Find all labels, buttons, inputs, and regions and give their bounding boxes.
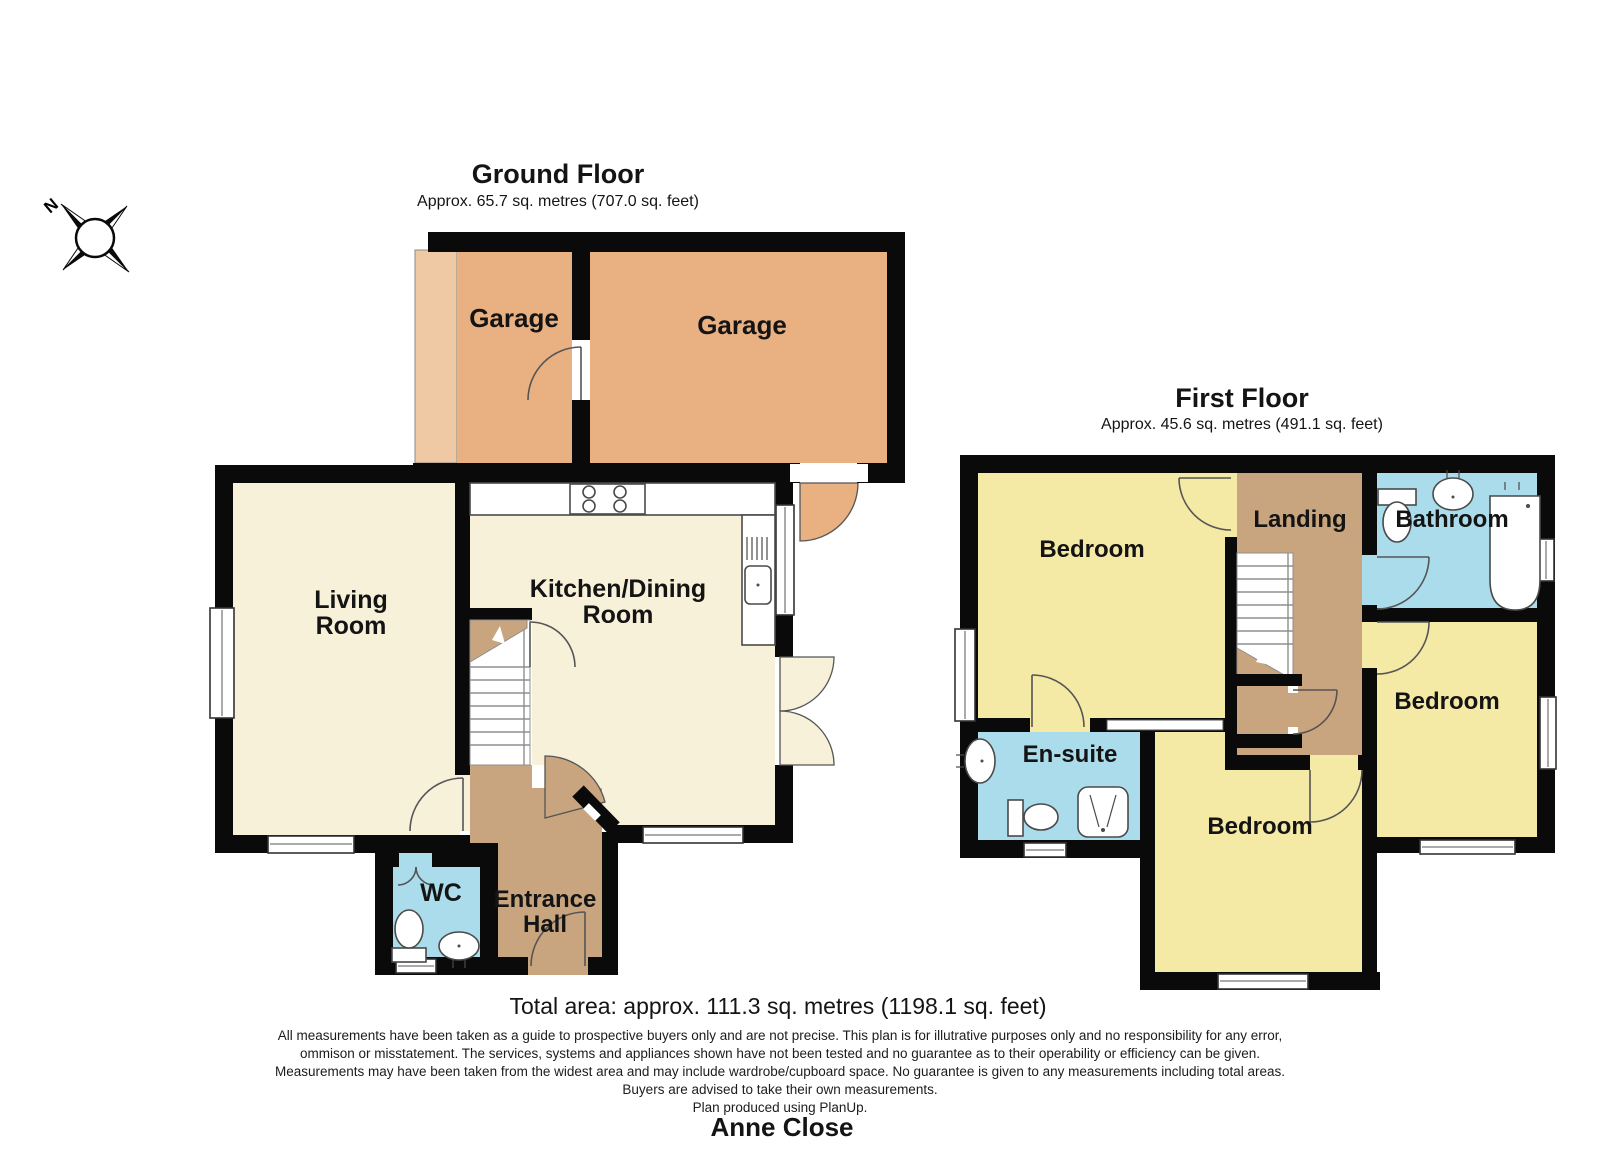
first-floor-plan: Bedroom Landing Bathroom En-suite Bedroo… — [955, 455, 1556, 990]
bedroom-top-left-floor — [978, 473, 1225, 718]
hall-floor — [470, 765, 532, 843]
toilet-icon — [392, 910, 426, 962]
french-door-leaf — [780, 711, 834, 765]
bathroom-label: Bathroom — [1395, 506, 1508, 533]
floorplan-canvas: N — [0, 0, 1600, 1163]
shower-icon — [1078, 787, 1128, 837]
bedroom-right-floor — [1377, 622, 1537, 837]
living-room-label: Living — [314, 586, 388, 614]
compass-north-label: N — [40, 195, 62, 217]
garage-right-label: Garage — [697, 310, 787, 340]
ground-stairs — [470, 620, 530, 765]
stove-icon — [570, 484, 645, 514]
bedroom-top-left-label: Bedroom — [1039, 536, 1144, 563]
garage-left-label: Garage — [469, 303, 559, 333]
landing-label: Landing — [1253, 506, 1346, 533]
garage-right-floor — [590, 252, 887, 463]
wardrobe — [1107, 720, 1223, 730]
compass-icon: N — [40, 195, 129, 272]
first-floor-stairs — [1237, 553, 1293, 680]
wc-label: WC — [420, 879, 462, 907]
garage-door-panel — [415, 250, 457, 463]
bedroom-right-label: Bedroom — [1394, 688, 1499, 715]
bathtub-icon — [1490, 482, 1540, 610]
kitchen-label: Kitchen/Dining — [530, 575, 706, 603]
entrance-hall-label: Entrance — [494, 886, 597, 913]
garage-exit-door — [800, 483, 858, 541]
ground-floor-plan: Garage Garage Living Room Kitchen/Dining… — [210, 232, 905, 975]
living-room-floor — [233, 483, 460, 835]
garage-left-floor — [457, 252, 572, 463]
ensuite-label: En-suite — [1023, 741, 1118, 768]
french-door-leaf — [780, 657, 834, 711]
kitchen-label: Room — [583, 601, 654, 629]
entrance-hall-label: Hall — [523, 911, 567, 938]
bedroom-bottom-label: Bedroom — [1207, 813, 1312, 840]
living-room-label: Room — [316, 612, 387, 640]
